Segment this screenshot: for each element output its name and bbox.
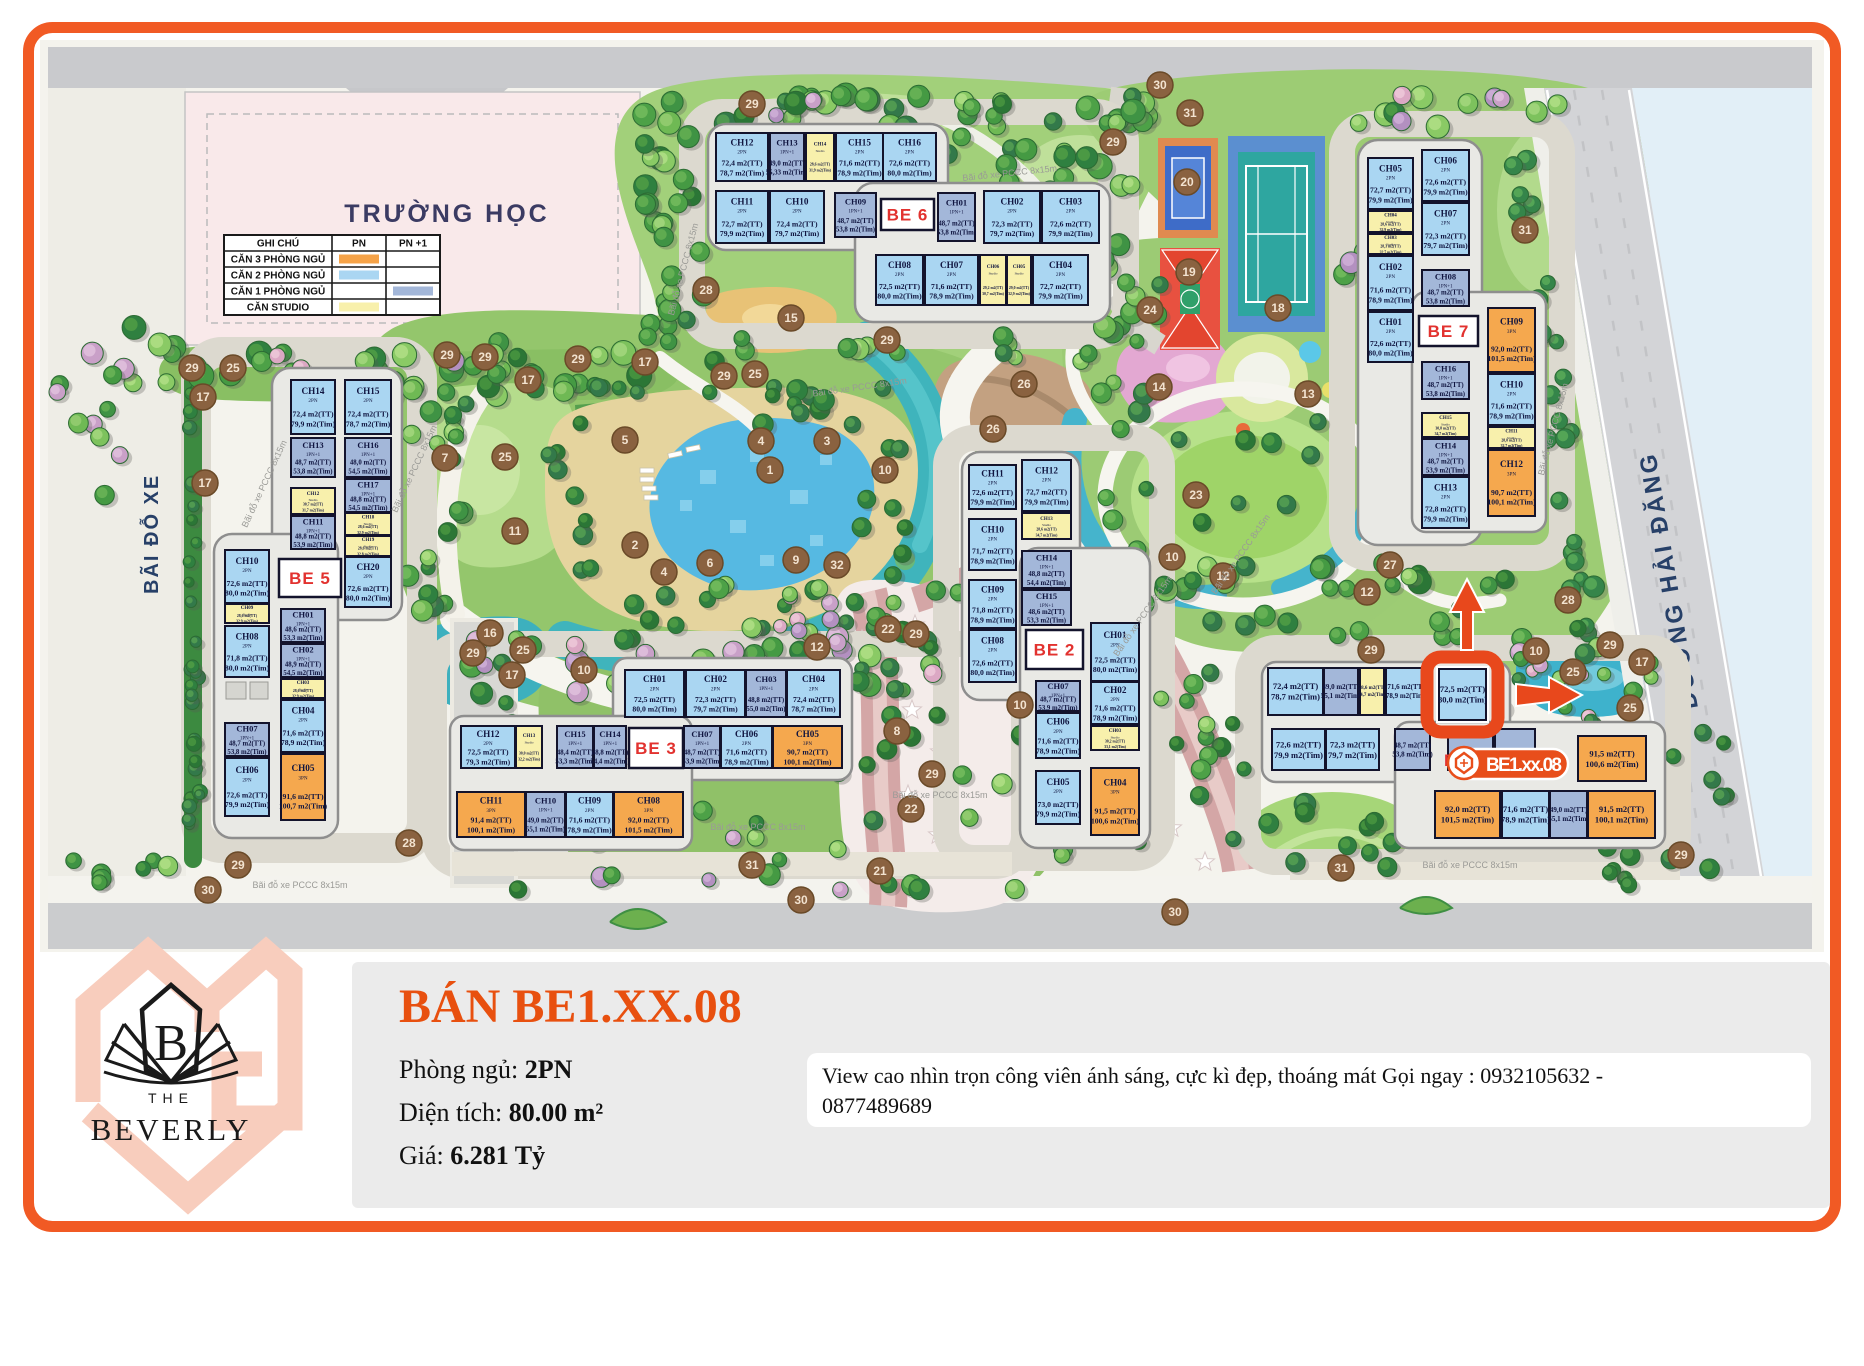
svg-text:CH10: CH10 <box>236 556 259 566</box>
svg-text:CH05: CH05 <box>1379 163 1402 173</box>
svg-text:48,7 m2(TT): 48,7 m2(TT) <box>1427 459 1463 466</box>
svg-text:10: 10 <box>577 663 591 677</box>
svg-text:80,0 m2(Tim): 80,0 m2(Tim) <box>1093 665 1138 674</box>
svg-text:CH04: CH04 <box>1104 777 1127 787</box>
svg-text:15: 15 <box>784 311 798 325</box>
svg-text:71,6 m2(TT): 71,6 m2(TT) <box>1503 804 1549 814</box>
svg-text:3PN: 3PN <box>298 775 307 781</box>
svg-text:2PN: 2PN <box>988 648 997 654</box>
svg-text:2PN: 2PN <box>242 644 251 650</box>
svg-text:80,0 m2(Tim): 80,0 m2(Tim) <box>632 705 677 714</box>
svg-text:CH01: CH01 <box>292 610 313 620</box>
svg-text:CH12: CH12 <box>307 492 320 497</box>
svg-text:71,6 m2(TT): 71,6 m2(TT) <box>283 728 324 737</box>
svg-text:78,9 m2(Tim): 78,9 m2(Tim) <box>837 168 882 177</box>
svg-text:72,4 m2(TT): 72,4 m2(TT) <box>777 219 818 228</box>
svg-text:BÁN BE1.XX.08: BÁN BE1.XX.08 <box>399 980 742 1033</box>
svg-text:CH14: CH14 <box>1036 553 1058 563</box>
svg-text:1PN+1: 1PN+1 <box>1039 566 1054 571</box>
svg-text:54,5 m2(Tim): 54,5 m2(Tim) <box>283 670 322 677</box>
svg-text:79,7 m2(Tim): 79,7 m2(Tim) <box>693 705 738 714</box>
svg-text:CH08: CH08 <box>1435 271 1456 281</box>
svg-text:CH02: CH02 <box>1379 262 1402 272</box>
svg-text:24: 24 <box>1143 303 1157 317</box>
svg-text:CH07: CH07 <box>1434 209 1457 219</box>
svg-text:72,4 m2(TT): 72,4 m2(TT) <box>348 410 389 419</box>
svg-text:CH13: CH13 <box>523 734 536 739</box>
svg-text:29: 29 <box>717 369 731 383</box>
svg-text:101,5 m2(Tim): 101,5 m2(Tim) <box>1441 815 1494 825</box>
svg-text:CH04: CH04 <box>1049 260 1072 270</box>
svg-text:30,7 m2(TT): 30,7 m2(TT) <box>303 503 324 507</box>
svg-text:13: 13 <box>1301 387 1315 401</box>
svg-text:71,6 m2(TT): 71,6 m2(TT) <box>839 159 880 168</box>
svg-text:11: 11 <box>509 524 522 538</box>
svg-text:CH06: CH06 <box>987 265 1000 270</box>
svg-text:101,5 m2(Tim): 101,5 m2(Tim) <box>624 825 673 834</box>
svg-text:30,8 m2(TT): 30,8 m2(TT) <box>1435 426 1456 430</box>
svg-text:29: 29 <box>1364 643 1378 657</box>
svg-text:30,0 m2(TT): 30,0 m2(TT) <box>519 752 540 756</box>
svg-text:48,7 m2(TT): 48,7 m2(TT) <box>837 218 873 225</box>
svg-text:25: 25 <box>748 367 762 381</box>
svg-text:2PN: 2PN <box>298 718 307 724</box>
svg-text:71,6 m2(TT): 71,6 m2(TT) <box>1491 402 1532 411</box>
svg-text:2PN: 2PN <box>855 150 864 156</box>
svg-text:CH17: CH17 <box>357 480 379 490</box>
svg-text:72,6 m2(TT): 72,6 m2(TT) <box>972 488 1013 497</box>
svg-text:29: 29 <box>909 627 923 641</box>
svg-text:79,9 m2(Tim): 79,9 m2(Tim) <box>720 229 765 238</box>
svg-text:CH16: CH16 <box>357 440 378 450</box>
svg-text:48,4 m2(TT): 48,4 m2(TT) <box>557 750 593 757</box>
svg-text:BE 7: BE 7 <box>1428 322 1470 341</box>
svg-text:Studio: Studio <box>1042 523 1051 527</box>
svg-text:80,0 m2(Tim): 80,0 m2(Tim) <box>225 589 270 598</box>
svg-text:CĂN 2 PHÒNG NGỦ: CĂN 2 PHÒNG NGỦ <box>231 269 325 282</box>
svg-text:28,6 m2(TT): 28,6 m2(TT) <box>358 525 379 529</box>
svg-text:72,5 m2(TT): 72,5 m2(TT) <box>468 748 509 757</box>
svg-text:48,7 m2(TT): 48,7 m2(TT) <box>684 750 720 757</box>
svg-text:72,3 m2(TT): 72,3 m2(TT) <box>695 695 736 704</box>
svg-text:72,3 m2(TT): 72,3 m2(TT) <box>992 219 1033 228</box>
svg-text:29: 29 <box>1603 638 1617 652</box>
svg-text:29: 29 <box>1674 848 1688 862</box>
svg-text:91,5 m2(TT): 91,5 m2(TT) <box>1589 748 1635 758</box>
svg-text:CĂN 3 PHÒNG NGỦ: CĂN 3 PHÒNG NGỦ <box>231 253 325 266</box>
svg-text:CH09: CH09 <box>241 606 254 611</box>
svg-text:100,6 m2(Tim): 100,6 m2(Tim) <box>1091 816 1140 825</box>
svg-text:CH12: CH12 <box>1035 465 1058 475</box>
svg-text:78,9 m2(Tim): 78,9 m2(Tim) <box>1093 713 1138 722</box>
svg-text:78,9 m2(Tim): 78,9 m2(Tim) <box>929 292 974 301</box>
svg-text:100,1 m2(Tim): 100,1 m2(Tim) <box>1487 498 1536 507</box>
svg-text:17: 17 <box>196 390 210 404</box>
svg-text:BE 2: BE 2 <box>1034 641 1076 660</box>
svg-text:CH02: CH02 <box>704 674 727 684</box>
svg-text:2PN: 2PN <box>737 209 746 215</box>
svg-text:2PN: 2PN <box>308 398 317 404</box>
svg-text:32,7 m2(Tim): 32,7 m2(Tim) <box>1380 250 1403 254</box>
svg-text:72,7 m2(TT): 72,7 m2(TT) <box>1370 186 1411 195</box>
svg-text:29: 29 <box>440 348 454 362</box>
svg-text:CH15: CH15 <box>848 138 871 148</box>
svg-text:78,9 m2(Tim): 78,9 m2(Tim) <box>1501 815 1550 825</box>
svg-text:CH03: CH03 <box>1059 197 1082 207</box>
svg-text:CH04: CH04 <box>292 706 315 716</box>
svg-text:53,8 m2(Tim): 53,8 m2(Tim) <box>1426 391 1465 398</box>
svg-text:72,7 m2(TT): 72,7 m2(TT) <box>722 219 763 228</box>
svg-text:29: 29 <box>925 767 939 781</box>
svg-text:CH10: CH10 <box>786 197 809 207</box>
svg-text:48,6 m2(TT): 48,6 m2(TT) <box>285 626 321 633</box>
svg-text:2PN: 2PN <box>242 568 251 574</box>
svg-text:1PN+1: 1PN+1 <box>568 742 583 747</box>
svg-text:31: 31 <box>745 858 759 872</box>
svg-text:90,7 m2(TT): 90,7 m2(TT) <box>787 748 828 757</box>
svg-text:CH08: CH08 <box>637 796 660 806</box>
svg-text:CH03: CH03 <box>1109 729 1122 734</box>
svg-text:2PN: 2PN <box>1007 209 1016 215</box>
svg-text:2PN: 2PN <box>895 272 904 278</box>
svg-text:78,9 m2(Tim): 78,9 m2(Tim) <box>724 757 769 766</box>
svg-text:Phòng ngủ: 2PN: Phòng ngủ: 2PN <box>399 1055 573 1084</box>
svg-text:CH01: CH01 <box>946 198 967 208</box>
svg-text:79,9 m2(Tim): 79,9 m2(Tim) <box>970 498 1015 507</box>
svg-text:Studio: Studio <box>989 271 998 275</box>
svg-text:Giá: 6.281 Tỷ: Giá: 6.281 Tỷ <box>399 1141 545 1170</box>
svg-text:55,0 m2(Tim): 55,0 m2(Tim) <box>746 706 785 713</box>
svg-text:79,9 m2(Tim): 79,9 m2(Tim) <box>225 800 270 809</box>
svg-text:CH06: CH06 <box>1434 155 1457 165</box>
svg-text:79,7 m2(Tim): 79,7 m2(Tim) <box>990 229 1035 238</box>
svg-text:26: 26 <box>1017 377 1031 391</box>
svg-text:53,9 m2(Tim): 53,9 m2(Tim) <box>1038 705 1077 712</box>
svg-text:3: 3 <box>824 434 831 448</box>
svg-text:CH06: CH06 <box>735 729 758 739</box>
svg-text:55,1 m2(Tim): 55,1 m2(Tim) <box>1321 692 1362 700</box>
svg-text:53,8 m2(Tim): 53,8 m2(Tim) <box>937 229 976 236</box>
svg-text:31,9 m2(Tim): 31,9 m2(Tim) <box>809 168 832 172</box>
svg-text:1PN+1: 1PN+1 <box>780 151 795 156</box>
svg-text:32,8 m2(Tim): 32,8 m2(Tim) <box>357 552 380 556</box>
svg-text:28: 28 <box>402 836 416 850</box>
svg-text:28: 28 <box>699 283 713 297</box>
svg-text:28: 28 <box>1561 593 1575 607</box>
svg-text:29: 29 <box>880 333 894 347</box>
svg-text:49,0 m2(TT): 49,0 m2(TT) <box>1322 683 1360 691</box>
svg-text:48,8 m2(TT): 48,8 m2(TT) <box>1028 571 1064 578</box>
svg-text:PN: PN <box>352 239 366 250</box>
svg-text:78,9 m2(Tim): 78,9 m2(Tim) <box>970 556 1015 565</box>
svg-text:71,8 m2(TT): 71,8 m2(TT) <box>227 654 268 663</box>
svg-text:1: 1 <box>767 463 774 477</box>
svg-text:28,6 m2(TT): 28,6 m2(TT) <box>358 547 379 551</box>
svg-text:30,7 m2(Tim): 30,7 m2(Tim) <box>982 292 1005 296</box>
svg-text:78,9 m2(Tim): 78,9 m2(Tim) <box>970 615 1015 624</box>
svg-text:2PN: 2PN <box>1053 729 1062 735</box>
svg-text:48,7 m2(TT): 48,7 m2(TT) <box>938 221 974 228</box>
svg-text:30: 30 <box>1153 78 1167 92</box>
svg-text:CĂN 1 PHÒNG NGỦ: CĂN 1 PHÒNG NGỦ <box>231 285 325 298</box>
svg-text:72,6 m2(TT): 72,6 m2(TT) <box>1425 178 1466 187</box>
svg-text:BE 6: BE 6 <box>887 206 929 225</box>
svg-text:78,9 m2(Tim): 78,9 m2(Tim) <box>567 825 612 834</box>
svg-text:34,7 m2(Tim): 34,7 m2(Tim) <box>1435 432 1458 436</box>
svg-text:31: 31 <box>1183 106 1197 120</box>
svg-text:80,0 m2(Tim): 80,0 m2(Tim) <box>970 668 1015 677</box>
svg-text:25: 25 <box>1566 665 1580 679</box>
svg-text:CH13: CH13 <box>776 138 797 148</box>
svg-text:72,6 m2(TT): 72,6 m2(TT) <box>348 584 389 593</box>
svg-text:CH01: CH01 <box>643 674 666 684</box>
svg-text:2PN: 2PN <box>711 686 720 692</box>
svg-text:48,7 m2(TT): 48,7 m2(TT) <box>1040 696 1076 703</box>
svg-text:48,7 m2(TT): 48,7 m2(TT) <box>1427 290 1463 297</box>
svg-text:Studio: Studio <box>525 740 534 744</box>
svg-text:2PN: 2PN <box>483 741 492 747</box>
svg-text:BÃI ĐỖ XE: BÃI ĐỖ XE <box>139 474 163 594</box>
svg-text:2PN: 2PN <box>1441 495 1450 501</box>
svg-text:32,9 m2(Tim): 32,9 m2(Tim) <box>292 695 315 699</box>
svg-text:CH04: CH04 <box>802 674 825 684</box>
svg-text:CH10: CH10 <box>1500 379 1523 389</box>
svg-text:CH07: CH07 <box>236 724 258 734</box>
svg-text:10: 10 <box>1165 550 1179 564</box>
svg-text:28,6 m2(TT): 28,6 m2(TT) <box>810 163 831 167</box>
svg-text:CH11: CH11 <box>303 517 324 527</box>
svg-text:17: 17 <box>198 476 212 490</box>
svg-text:BE 5: BE 5 <box>289 569 331 588</box>
svg-text:CH09: CH09 <box>845 196 866 206</box>
svg-text:2PN: 2PN <box>1386 329 1395 335</box>
svg-text:CH14: CH14 <box>599 729 621 739</box>
svg-text:CĂN STUDIO: CĂN STUDIO <box>247 301 309 314</box>
svg-text:CH15: CH15 <box>357 386 380 396</box>
svg-text:71,6 m2(TT): 71,6 m2(TT) <box>931 282 972 291</box>
svg-text:2PN: 2PN <box>1386 274 1395 280</box>
svg-text:CH05: CH05 <box>1013 265 1026 270</box>
svg-text:17: 17 <box>521 373 535 387</box>
svg-text:54,5 m2(Tim): 54,5 m2(Tim) <box>348 468 387 475</box>
svg-text:12: 12 <box>1360 585 1374 599</box>
svg-text:72,5 m2(TT): 72,5 m2(TT) <box>1440 684 1486 694</box>
svg-text:80,0 m2(Tim): 80,0 m2(Tim) <box>346 594 391 603</box>
svg-text:3PN: 3PN <box>644 808 653 814</box>
svg-text:28,6 m2(TT): 28,6 m2(TT) <box>1359 686 1386 691</box>
svg-text:CH16: CH16 <box>1435 364 1456 374</box>
svg-text:CH08: CH08 <box>236 631 259 641</box>
svg-text:100,6 m2(Tim): 100,6 m2(Tim) <box>1585 759 1638 769</box>
svg-text:26: 26 <box>986 422 1000 436</box>
svg-text:17: 17 <box>505 668 519 682</box>
svg-text:79,3 m2(Tim): 79,3 m2(Tim) <box>466 757 511 766</box>
svg-text:CH14: CH14 <box>302 386 325 396</box>
svg-text:72,8 m2(TT): 72,8 m2(TT) <box>1425 505 1466 514</box>
svg-text:32,9 m2(Tim): 32,9 m2(Tim) <box>357 531 380 535</box>
svg-text:1PN+1: 1PN+1 <box>1438 377 1453 382</box>
svg-text:92,0 m2(TT): 92,0 m2(TT) <box>1491 345 1532 354</box>
svg-text:79,9 m2(Tim): 79,9 m2(Tim) <box>1024 497 1069 506</box>
svg-text:CH11: CH11 <box>981 468 1004 478</box>
svg-text:48,8 m2(TT): 48,8 m2(TT) <box>592 750 628 757</box>
svg-text:54,4 m2(Tim): 54,4 m2(Tim) <box>1027 580 1066 587</box>
svg-text:0877489689: 0877489689 <box>822 1093 932 1118</box>
svg-text:CH12: CH12 <box>1500 459 1523 469</box>
svg-text:6: 6 <box>707 556 714 570</box>
svg-text:CH13: CH13 <box>1434 482 1457 492</box>
svg-text:17: 17 <box>1635 655 1649 669</box>
svg-text:CH11: CH11 <box>731 197 754 207</box>
svg-text:48,8 m2(TT): 48,8 m2(TT) <box>748 697 784 704</box>
svg-text:2PN: 2PN <box>809 686 818 692</box>
svg-text:18: 18 <box>1271 301 1285 315</box>
svg-text:BE 3: BE 3 <box>635 739 677 758</box>
svg-text:CH02: CH02 <box>1001 197 1024 207</box>
svg-text:19: 19 <box>1182 265 1196 279</box>
svg-text:25: 25 <box>498 450 512 464</box>
svg-text:2PN: 2PN <box>363 574 372 580</box>
svg-text:71,6 m2(TT): 71,6 m2(TT) <box>1387 683 1425 691</box>
svg-text:7: 7 <box>442 451 449 465</box>
svg-text:2: 2 <box>632 538 639 552</box>
svg-text:BEVERLY: BEVERLY <box>91 1112 252 1147</box>
svg-text:49,0 m2(TT): 49,0 m2(TT) <box>769 161 805 168</box>
svg-text:CH13: CH13 <box>1040 517 1053 522</box>
svg-text:80,0 m2(Tim): 80,0 m2(Tim) <box>1438 694 1487 704</box>
svg-text:2PN: 2PN <box>1042 478 1051 484</box>
svg-text:30: 30 <box>1168 905 1182 919</box>
svg-text:25: 25 <box>516 643 530 657</box>
svg-text:21: 21 <box>873 864 887 878</box>
svg-text:CH18: CH18 <box>362 516 375 521</box>
svg-text:48,8 m2(TT): 48,8 m2(TT) <box>295 533 331 540</box>
svg-text:2PN: 2PN <box>792 209 801 215</box>
svg-text:53,9 m2(Tim): 53,9 m2(Tim) <box>1426 467 1465 474</box>
svg-text:100,7 m2(Tim): 100,7 m2(Tim) <box>279 802 328 811</box>
svg-text:CH02: CH02 <box>1104 685 1127 695</box>
svg-text:78,9 m2(Tim): 78,9 m2(Tim) <box>1368 295 1413 304</box>
svg-text:72,4 m2(TT): 72,4 m2(TT) <box>1273 681 1319 691</box>
svg-text:91,4 m2(TT): 91,4 m2(TT) <box>471 816 512 825</box>
svg-text:CH06: CH06 <box>236 765 259 775</box>
svg-text:48,7 m2(TT): 48,7 m2(TT) <box>295 460 331 467</box>
svg-text:55,1 m2(Tim): 55,1 m2(Tim) <box>526 826 565 833</box>
svg-text:72,5 m2(TT): 72,5 m2(TT) <box>879 282 920 291</box>
svg-text:2PN: 2PN <box>947 272 956 278</box>
svg-text:3PN: 3PN <box>1507 471 1516 477</box>
svg-text:2PN: 2PN <box>1053 789 1062 795</box>
svg-text:GHI CHÚ: GHI CHÚ <box>257 237 299 250</box>
svg-text:53,3 m2(Tim): 53,3 m2(Tim) <box>1027 618 1066 625</box>
svg-text:2PN: 2PN <box>1386 176 1395 182</box>
svg-text:3PN: 3PN <box>1110 790 1119 796</box>
svg-text:48,7 m2(TT): 48,7 m2(TT) <box>1394 741 1432 749</box>
svg-text:CH10: CH10 <box>981 524 1004 534</box>
svg-text:48,7 m2(TT): 48,7 m2(TT) <box>229 740 265 747</box>
svg-text:72,6 m2(TT): 72,6 m2(TT) <box>227 790 268 799</box>
svg-text:32,9 m2(Tim): 32,9 m2(Tim) <box>236 620 259 624</box>
svg-text:1PN+1: 1PN+1 <box>538 809 553 814</box>
svg-text:4: 4 <box>661 565 668 579</box>
svg-text:29: 29 <box>745 97 759 111</box>
svg-text:3PN: 3PN <box>803 741 812 747</box>
svg-text:CH15: CH15 <box>1439 416 1452 421</box>
svg-text:54,5 m2(Tim): 54,5 m2(Tim) <box>348 505 387 512</box>
svg-text:53,9 m2(Tim): 53,9 m2(Tim) <box>682 758 721 765</box>
svg-text:CH07: CH07 <box>1047 681 1069 691</box>
svg-text:79,9 m2(Tim): 79,9 m2(Tim) <box>291 419 336 428</box>
svg-text:71,7 m2(TT): 71,7 m2(TT) <box>972 547 1013 556</box>
svg-text:17: 17 <box>638 355 652 369</box>
svg-text:78,9 m2(Tim): 78,9 m2(Tim) <box>1489 411 1534 420</box>
svg-text:91,5 m2(TT): 91,5 m2(TT) <box>1599 804 1645 814</box>
svg-text:79,9 m2(Tim): 79,9 m2(Tim) <box>1048 229 1093 238</box>
svg-text:79,9 m2(Tim): 79,9 m2(Tim) <box>1423 514 1468 523</box>
svg-text:5: 5 <box>622 433 629 447</box>
svg-text:CH09: CH09 <box>1500 317 1523 327</box>
svg-text:91,5 m2(TT): 91,5 m2(TT) <box>1095 807 1136 816</box>
svg-text:1PN+1: 1PN+1 <box>603 742 618 747</box>
svg-text:CH16: CH16 <box>898 138 921 148</box>
svg-text:CH10: CH10 <box>535 796 556 806</box>
svg-text:CH12: CH12 <box>477 729 500 739</box>
svg-text:CH14: CH14 <box>1435 440 1457 450</box>
svg-text:CH03: CH03 <box>755 674 776 684</box>
svg-text:10: 10 <box>1013 698 1027 712</box>
svg-text:90,7 m2(TT): 90,7 m2(TT) <box>1491 488 1532 497</box>
svg-text:29: 29 <box>1106 135 1120 149</box>
svg-text:CH08: CH08 <box>981 636 1004 646</box>
svg-text:100,1 m2(Tim): 100,1 m2(Tim) <box>783 757 832 766</box>
svg-text:80,0 m2(Tim): 80,0 m2(Tim) <box>877 292 922 301</box>
svg-text:71,8 m2(TT): 71,8 m2(TT) <box>972 606 1013 615</box>
svg-text:CH13: CH13 <box>302 440 323 450</box>
svg-text:CH14: CH14 <box>814 143 827 148</box>
svg-text:80,0 m2(Tim): 80,0 m2(Tim) <box>1368 349 1413 358</box>
svg-text:2PN: 2PN <box>1056 272 1065 278</box>
svg-text:22: 22 <box>881 622 895 636</box>
svg-text:33,1 m2(Tim): 33,1 m2(Tim) <box>1104 745 1127 749</box>
svg-text:72,3 m2(TT): 72,3 m2(TT) <box>1425 231 1466 240</box>
svg-text:2PN: 2PN <box>988 481 997 487</box>
svg-text:80,0 m2(Tim): 80,0 m2(Tim) <box>887 168 932 177</box>
svg-text:1PN+1: 1PN+1 <box>306 453 321 458</box>
svg-text:72,6 m2(TT): 72,6 m2(TT) <box>1276 739 1322 749</box>
svg-text:48,7 m2(TT): 48,7 m2(TT) <box>1427 382 1463 389</box>
svg-text:BE1.xx.08: BE1.xx.08 <box>1486 755 1562 776</box>
svg-text:16: 16 <box>483 626 497 640</box>
svg-text:PN +1: PN +1 <box>399 239 428 250</box>
svg-text:CH09: CH09 <box>981 585 1004 595</box>
svg-text:2PN: 2PN <box>1066 209 1075 215</box>
svg-text:54,4 m2(Tim): 54,4 m2(Tim) <box>590 758 629 765</box>
svg-text:CH02: CH02 <box>292 645 313 655</box>
svg-text:79,7 m2(Tim): 79,7 m2(Tim) <box>775 229 820 238</box>
svg-text:12: 12 <box>810 640 824 654</box>
svg-text:78,9 m2(Tim): 78,9 m2(Tim) <box>281 738 326 747</box>
svg-text:22: 22 <box>904 802 918 816</box>
svg-text:53,8 m2(Tim): 53,8 m2(Tim) <box>1392 750 1433 758</box>
svg-text:79,7 m2(Tim): 79,7 m2(Tim) <box>1423 241 1468 250</box>
svg-text:30: 30 <box>201 883 215 897</box>
svg-text:1PN+1: 1PN+1 <box>949 211 964 216</box>
svg-text:Bãi đỗ xe PCCC 8x15m: Bãi đỗ xe PCCC 8x15m <box>1422 860 1517 870</box>
svg-text:72,7 m2(TT): 72,7 m2(TT) <box>1040 282 1081 291</box>
svg-text:Studio: Studio <box>309 498 318 502</box>
svg-text:31,7 m2(Tim): 31,7 m2(Tim) <box>302 509 325 513</box>
svg-text:Bãi đỗ xe PCCC 8x15m: Bãi đỗ xe PCCC 8x15m <box>710 822 805 832</box>
